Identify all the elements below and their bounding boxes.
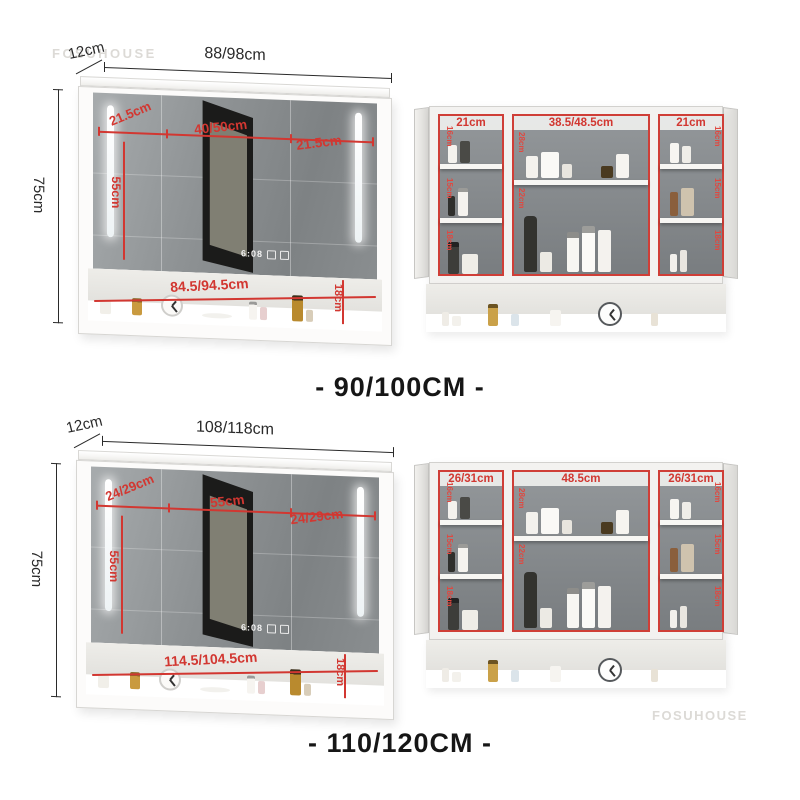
toiletry-item <box>601 166 613 178</box>
compartment-items <box>670 138 691 163</box>
toiletry-item <box>680 250 687 272</box>
compartment-items <box>670 588 687 628</box>
width-dimension-tick-right <box>393 447 394 457</box>
toiletry-item <box>670 499 679 519</box>
open-door-left <box>414 463 429 635</box>
cabinet-column-center: 48.5cm <box>512 470 650 632</box>
toiletry-item <box>582 226 595 272</box>
height-dimension-cap-bottom <box>51 696 61 697</box>
toiletry-item <box>670 143 679 163</box>
toiletry-item <box>260 307 267 320</box>
doors-dimension-tick <box>290 134 292 143</box>
toiletry-item <box>448 552 455 572</box>
led-strip-right <box>357 487 364 617</box>
depth-dimension-line <box>76 59 102 74</box>
toiletry-item <box>682 146 691 163</box>
toiletry-item <box>680 606 687 628</box>
right-compartment-height-label: 15cm <box>713 178 722 198</box>
height-dimension-cap-top <box>51 463 61 464</box>
toiletry-item <box>651 313 658 326</box>
shelf-board <box>660 218 722 223</box>
toiletry-item <box>462 610 478 630</box>
toiletry-item <box>670 254 677 272</box>
toiletry-item <box>511 314 519 326</box>
toiletry-item <box>681 544 694 572</box>
compartment-items <box>670 174 694 216</box>
toiletry-item <box>247 675 255 693</box>
toiletry-item <box>524 572 537 628</box>
doors-dimension-tick <box>166 129 168 138</box>
shelf-board <box>514 536 648 541</box>
center-compartment-height-label: 28cm <box>517 488 526 508</box>
clock-hand <box>171 305 177 312</box>
mirror-display: 6:08 <box>241 622 289 634</box>
compartment-items <box>524 546 611 628</box>
shelf-board <box>660 164 722 169</box>
toiletry-item <box>670 610 677 628</box>
toiletry-item <box>460 141 470 163</box>
toiletry-item <box>540 608 552 628</box>
doors-dimension-tick <box>98 127 100 136</box>
toiletry-item <box>458 188 468 216</box>
toiletry-item <box>448 501 457 519</box>
toiletry-item <box>682 502 691 519</box>
cabinet-column-center: 38.5/48.5cm <box>512 114 650 276</box>
open-cabinet-110-120: 26/31cm 48.5cm <box>420 462 732 688</box>
toiletry-item <box>541 508 559 534</box>
left-compartment-height-label: 18cm <box>445 586 454 606</box>
right-compartment-height-label: 16cm <box>713 482 722 502</box>
toiletry-item <box>462 254 478 274</box>
toiletry-item <box>616 154 629 178</box>
open-cabinet-bottom-shelf <box>426 640 726 688</box>
shelf-height-label: 18cm <box>332 284 344 313</box>
toiletry-item <box>448 145 457 163</box>
toiletry-item <box>562 164 572 178</box>
closed-cabinet-110-120: 12cm 108/118cm 75cm 6:08 <box>76 450 394 720</box>
toiletry-item <box>306 310 313 322</box>
compartment-items <box>670 530 694 572</box>
depth-dimension-line <box>74 433 100 448</box>
toiletry-item <box>488 304 498 326</box>
toiletry-item <box>448 196 455 216</box>
toiletry-item <box>524 216 537 272</box>
height-dimension-line <box>58 89 59 323</box>
shelf-clock <box>161 294 183 317</box>
open-door-right <box>723 463 738 635</box>
doors-dimension-tick <box>374 511 376 520</box>
shelf-board <box>440 520 502 525</box>
compartment-items <box>526 494 629 534</box>
compartment-items <box>670 494 691 519</box>
shelf-items <box>442 658 658 682</box>
toiletry-item <box>526 156 538 178</box>
left-compartment-height-label: 15cm <box>445 534 454 554</box>
led-height-line <box>121 516 123 634</box>
left-compartment-height-label: 16cm <box>445 482 454 502</box>
height-dimension-line <box>56 463 57 697</box>
toiletry-item <box>598 230 611 272</box>
toiletry-item <box>442 668 449 682</box>
toiletry-item <box>511 670 519 682</box>
toiletry-item <box>442 312 449 326</box>
compartment-items <box>526 138 629 178</box>
square-touch-button-icon <box>280 250 289 259</box>
toiletry-item <box>458 544 468 572</box>
led-height-label: 55cm <box>109 176 123 209</box>
center-compartment-height-label: 22cm <box>517 188 526 208</box>
open-door-left <box>414 107 429 279</box>
toiletry-item <box>562 520 572 534</box>
right-compartment-height-label: 16cm <box>713 126 722 146</box>
shelf-board <box>660 520 722 525</box>
led-strip-right <box>355 113 362 243</box>
led-height-line <box>123 142 125 260</box>
compartment-items <box>524 190 611 272</box>
square-touch-button-icon <box>267 250 276 259</box>
toiletry-item <box>526 512 538 534</box>
width-dimension-label: 88/98cm <box>78 40 392 70</box>
shelf-board <box>514 180 648 185</box>
door-seam <box>290 100 291 276</box>
wall-clock <box>598 658 622 682</box>
door-seam <box>161 95 162 271</box>
left-compartment-height-label: 15cm <box>445 178 454 198</box>
height-dimension-label: 75cm <box>28 550 45 587</box>
left-compartment-height-label: 18cm <box>445 230 454 250</box>
toiletry-item <box>616 510 629 534</box>
shelf-board <box>440 218 502 223</box>
toiletry-item <box>452 672 461 682</box>
width-dimension-line <box>102 441 394 453</box>
width-dimension-line <box>104 67 392 79</box>
center-compartment-height-label: 22cm <box>517 544 526 564</box>
door-seam <box>291 474 292 650</box>
toiletry-item <box>651 669 658 682</box>
plate-item <box>200 687 230 693</box>
clock-hand <box>609 314 615 321</box>
width-dimension-tick-left <box>102 436 103 446</box>
led-height-label: 55cm <box>107 550 121 583</box>
toiletry-item <box>460 497 470 519</box>
open-cabinet-90-100: 21cm 38.5/48.5cm <box>420 106 732 332</box>
height-dimension-cap-top <box>53 89 63 90</box>
shelf-board <box>660 574 722 579</box>
toiletry-item <box>452 316 461 326</box>
toiletry-item <box>567 232 579 272</box>
right-compartment-height-label: 18cm <box>713 586 722 606</box>
product-dimension-sheet: FOSUHOUSE 12cm 88/98cm 75cm 6:08 <box>0 0 800 800</box>
shelf-items <box>442 302 658 326</box>
toiletry-item <box>98 675 109 688</box>
center-compartment-height-label: 28cm <box>517 132 526 152</box>
height-dimension-label: 75cm <box>30 176 47 213</box>
square-touch-button-icon <box>267 624 276 633</box>
toiletry-item <box>488 660 498 682</box>
toiletry-item <box>100 301 111 314</box>
toiletry-item <box>598 586 611 628</box>
toiletry-item <box>292 295 303 321</box>
open-door-right <box>723 107 738 279</box>
toiletry-item <box>670 192 678 216</box>
toiletry-item <box>681 188 694 216</box>
doors-dimension-tick <box>96 501 98 510</box>
toiletry-item <box>258 681 265 694</box>
size-caption-110-120: - 110/120CM - <box>0 728 800 759</box>
square-touch-button-icon <box>280 624 289 633</box>
shelf-clock <box>159 668 181 691</box>
doors-dimension-tick <box>372 137 374 146</box>
toiletry-item <box>582 582 595 628</box>
right-compartment-height-label: 15cm <box>713 534 722 554</box>
toiletry-item <box>304 684 311 696</box>
toiletry-item <box>540 252 552 272</box>
wall-clock <box>598 302 622 326</box>
left-compartment-height-label: 16cm <box>445 126 454 146</box>
door-seam <box>161 469 162 645</box>
plate-item <box>202 313 232 319</box>
toiletry-item <box>550 666 561 682</box>
toiletry-item <box>541 152 559 178</box>
toiletry-item <box>601 522 613 534</box>
clock-hand <box>169 679 175 686</box>
column-center-width-label: 38.5/48.5cm <box>514 116 648 130</box>
height-dimension-cap-bottom <box>53 322 63 323</box>
doors-dimension-tick <box>168 503 170 512</box>
shelf-board <box>440 164 502 169</box>
closed-cabinet-90-100: 12cm 88/98cm 75cm 6:08 <box>78 76 392 346</box>
shelf-board <box>440 574 502 579</box>
toiletry-item <box>249 302 257 320</box>
shelf-height-label: 18cm <box>334 658 346 687</box>
size-caption-90-100: - 90/100CM - <box>0 372 800 403</box>
toiletry-item <box>567 588 579 628</box>
clock-hand <box>609 670 615 677</box>
right-compartment-height-label: 18cm <box>713 230 722 250</box>
width-dimension-tick-left <box>104 62 105 72</box>
toiletry-item <box>550 310 561 326</box>
mirror-display: 6:08 <box>241 248 289 260</box>
mirror-clock-time: 6:08 <box>241 622 263 633</box>
brand-watermark: FOSUHOUSE <box>652 708 748 723</box>
toiletry-item <box>670 548 678 572</box>
open-cabinet-bottom-shelf <box>426 284 726 332</box>
width-dimension-label: 108/118cm <box>76 414 394 444</box>
column-center-width-label: 48.5cm <box>514 472 648 486</box>
mirror-clock-time: 6:08 <box>241 248 263 259</box>
width-dimension-tick-right <box>391 73 392 83</box>
compartment-items <box>670 232 687 272</box>
toiletry-item <box>290 669 301 695</box>
